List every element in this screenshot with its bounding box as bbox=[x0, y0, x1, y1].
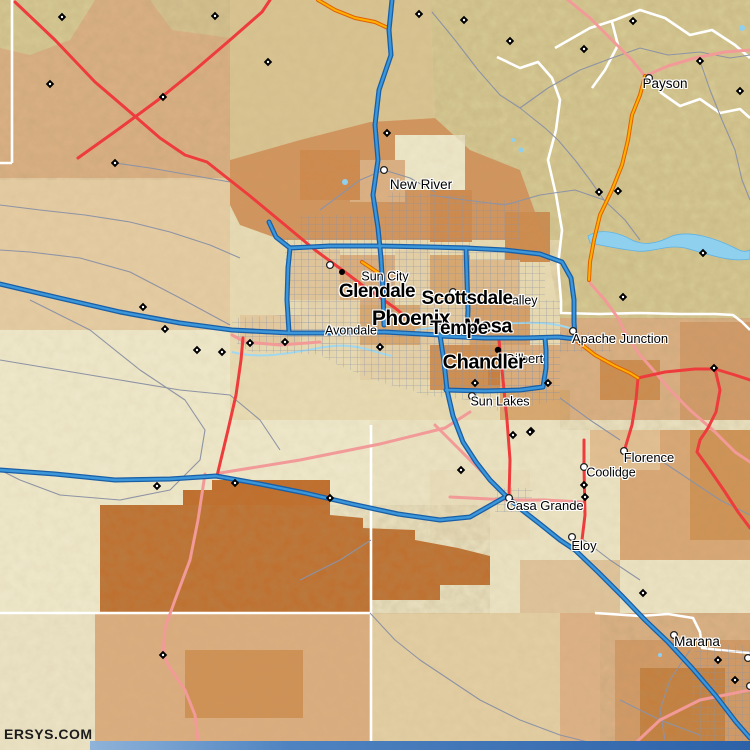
map-watermark: ERSYS.COM bbox=[4, 726, 93, 742]
footer-bar bbox=[90, 741, 750, 750]
map-canvas[interactable]: PaysonNew RiverSun CityValleyAvondaleGil… bbox=[0, 0, 750, 750]
map-graphics bbox=[0, 0, 750, 750]
